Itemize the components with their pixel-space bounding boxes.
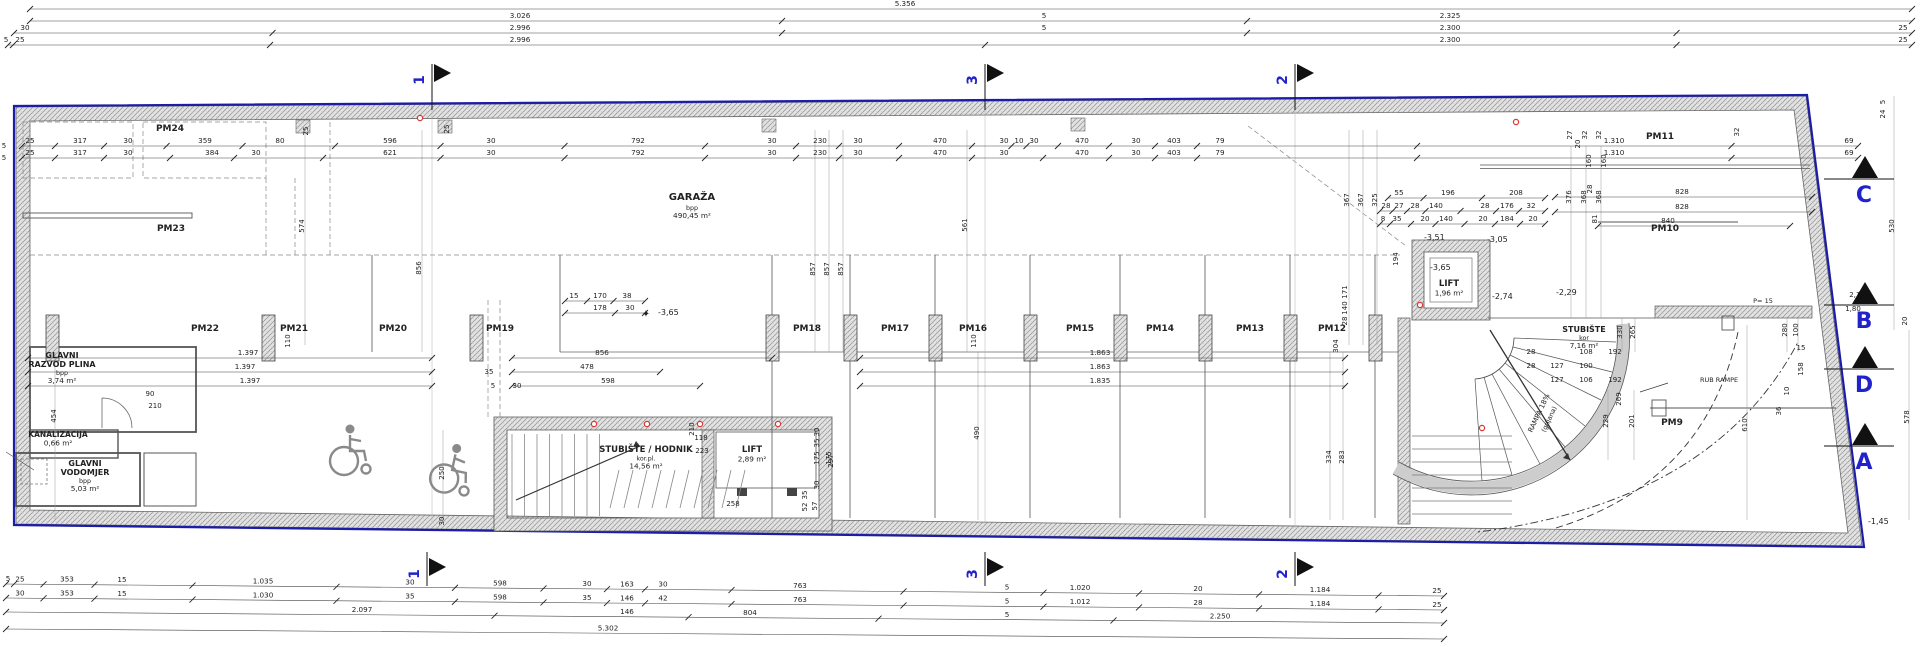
- dim-label: 25: [1432, 600, 1441, 609]
- floor-plan-svg: 5.3563.02652.325302.99652.300255252.9962…: [0, 0, 1920, 647]
- lift-door-jamb: [737, 488, 747, 496]
- dim-label: 28: [1586, 185, 1594, 194]
- dim-label: 30: [582, 579, 592, 588]
- dim-label: 1.012: [1070, 597, 1091, 606]
- dim-label: 15: [1797, 344, 1806, 352]
- dim-label: 140: [1341, 301, 1349, 314]
- column: [1024, 315, 1037, 361]
- dim-label: 10: [1783, 387, 1791, 396]
- room-name: STUBIŠTE / HODNIK: [599, 443, 693, 455]
- dim-label: 598: [493, 578, 507, 587]
- elevation-letter: D: [1855, 373, 1873, 398]
- room-name: STUBIŠTE: [1562, 323, 1605, 334]
- red-marker: [591, 421, 596, 426]
- dim-label: 359: [198, 136, 212, 145]
- dim-label: 384: [205, 148, 219, 157]
- red-marker: [775, 421, 780, 426]
- section-number: 2: [1275, 569, 1291, 579]
- parking-space-label: PM17: [881, 324, 909, 334]
- dim-label: 32: [1581, 131, 1589, 140]
- dim-label: 1.397: [235, 362, 256, 371]
- column: [1199, 315, 1212, 361]
- dim-label: 15: [117, 589, 126, 598]
- parking-space-label: PM18: [793, 324, 821, 334]
- column: [844, 315, 857, 361]
- dim-label: 10: [1014, 136, 1024, 145]
- dim-label: 596: [383, 136, 397, 145]
- dim-line: [6, 629, 1444, 639]
- section-flag-icon: [434, 64, 451, 82]
- elevation-triangle-icon: [1852, 156, 1878, 178]
- dim-label: 110: [284, 334, 292, 347]
- dim-label: 8: [1381, 214, 1386, 223]
- right-core-wall: [1398, 318, 1410, 524]
- level-value: -3,05: [1487, 235, 1508, 244]
- dim-label: 598: [493, 592, 507, 601]
- dim-label: 2.325: [1440, 11, 1461, 20]
- room-name: LIFT: [1439, 279, 1459, 289]
- dim-label: 317: [73, 136, 87, 145]
- dim-label: 3.026: [510, 11, 531, 20]
- dim-label: 55: [1394, 188, 1403, 197]
- annotation: RUB RAMPE: [1700, 376, 1738, 384]
- dim-label: 530: [1888, 219, 1896, 232]
- dim-label: 403: [1167, 136, 1181, 145]
- dim-label: 30: [123, 148, 133, 157]
- dim-label: 25: [443, 125, 451, 134]
- dim-label: 57: [811, 502, 819, 511]
- section-number: 3: [965, 75, 981, 85]
- red-marker: [1513, 119, 1518, 124]
- parking-space-label: PM23: [157, 224, 185, 234]
- dim-label: 28: [1410, 201, 1420, 210]
- dim-label: 856: [415, 261, 423, 275]
- dim-label: 192: [1608, 348, 1621, 356]
- dim-label: 470: [933, 148, 947, 157]
- level-value: -2,74: [1492, 292, 1513, 301]
- dim-label: 30: [625, 303, 635, 312]
- dim-label: 30: [999, 136, 1009, 145]
- section-flag-icon: [987, 64, 1004, 82]
- room-adjacent: [144, 453, 196, 506]
- dim-label: 2.996: [510, 35, 531, 44]
- section-flag-icon: [987, 558, 1004, 576]
- dim-label: 28: [1480, 201, 1490, 210]
- dim-label: 127: [1550, 376, 1563, 384]
- beam: [23, 213, 192, 218]
- dim-label: 230: [813, 136, 827, 145]
- level-value: -3,65: [658, 308, 679, 317]
- dim-label: 28: [1381, 201, 1391, 210]
- section-number: 1: [412, 75, 428, 85]
- dim-label: 28: [1527, 348, 1536, 356]
- dim-label: 610: [1741, 418, 1749, 431]
- wall-pilaster: [762, 119, 776, 132]
- dim-label: 454: [50, 409, 58, 423]
- dim-label: 828: [1675, 202, 1689, 211]
- dim-label: 163: [620, 579, 634, 588]
- dim-label: 35: [1392, 214, 1401, 223]
- dim-label: 146: [620, 593, 634, 602]
- elevation-triangle-icon: [1852, 346, 1878, 368]
- dim-label: 192: [1608, 376, 1621, 384]
- dim-label: 146: [620, 607, 634, 616]
- dim-label: 30: [767, 148, 777, 157]
- dim-label: 35: [801, 491, 809, 500]
- dim-label: 230: [813, 148, 827, 157]
- parking-space-label: PM24: [156, 124, 184, 134]
- level-value: -3,65: [1430, 263, 1451, 272]
- dim-label: 857: [837, 262, 845, 275]
- dim-label: 297: [827, 454, 835, 467]
- dim-label: 5.356: [895, 0, 916, 8]
- ramp-edge-dashdot: [1478, 342, 1798, 532]
- parking-space-label: PM19: [486, 324, 514, 334]
- dim-label: 2.300: [1440, 23, 1461, 32]
- room-name: GLAVNI: [68, 459, 101, 468]
- dim-label: 20: [1528, 214, 1538, 223]
- dim-label: 158: [1797, 362, 1805, 375]
- room-name: GLAVNI: [45, 351, 78, 360]
- dim-label: 35: [813, 439, 821, 448]
- dim-label: 621: [383, 148, 397, 157]
- accessible-parking-icon: [330, 425, 371, 476]
- dim-label: 20: [1901, 317, 1909, 326]
- dim-label: 32: [1733, 128, 1741, 137]
- dim-label: 857: [823, 262, 831, 275]
- dim-label: 25: [302, 127, 310, 136]
- dim-label: 258: [726, 500, 739, 508]
- parking-bay-dashed-lines: [23, 122, 1406, 417]
- dim-label: 1.863: [1090, 362, 1111, 371]
- dim-label: 30: [123, 136, 133, 145]
- parking-space-label: PM21: [280, 324, 308, 334]
- dim-line: [6, 598, 1444, 610]
- bay-separators: [372, 255, 1375, 518]
- dim-label: 25: [1898, 35, 1907, 44]
- room-name: LIFT: [742, 445, 762, 455]
- dim-label: 35: [485, 368, 494, 376]
- parking-space-label: PM11: [1646, 132, 1674, 142]
- dim-label: 470: [1075, 136, 1089, 145]
- dim-label: 5: [1042, 23, 1047, 32]
- dim-label: 25: [1432, 586, 1441, 595]
- dim-label: 32: [1595, 131, 1603, 140]
- dim-label: 30: [999, 148, 1009, 157]
- dim-label: 100: [1579, 362, 1592, 370]
- level-value: -3,51: [1424, 233, 1445, 242]
- annotation: 90: [146, 390, 155, 398]
- parking-space-label: PM10: [1651, 224, 1679, 234]
- dim-label: 36: [1775, 406, 1783, 415]
- elevation-letter: C: [1856, 183, 1872, 208]
- dim-label: 118: [694, 434, 707, 442]
- dim-label: 317: [73, 148, 87, 157]
- dim-label: 2.097: [352, 605, 373, 614]
- dim-label: 403: [1167, 148, 1181, 157]
- dim-label: 175: [813, 451, 821, 464]
- dim-label: 2.250: [1210, 611, 1231, 620]
- dim-label: 28: [1527, 362, 1536, 370]
- dim-label: 804: [743, 608, 757, 617]
- dim-label: 208: [1509, 188, 1523, 197]
- dim-label: 201: [1628, 414, 1636, 427]
- dim-label: 763: [793, 595, 807, 604]
- dim-label: 140: [1429, 201, 1443, 210]
- parking-space-label: PM15: [1066, 324, 1094, 334]
- section-flag-icon: [1297, 64, 1314, 82]
- dim-label: 27: [1394, 201, 1403, 210]
- room-area-value: 5,03 m²: [71, 484, 100, 493]
- dim-label: 30: [767, 136, 777, 145]
- dim-label: 283: [1338, 450, 1346, 463]
- dim-label: 5: [4, 35, 9, 44]
- dim-label: 171: [1341, 285, 1349, 298]
- dim-label: 100: [1792, 323, 1800, 336]
- dim-label: 20: [1574, 140, 1582, 149]
- elevation-triangle-icon: [1852, 423, 1878, 445]
- dim-label: 367: [1357, 193, 1365, 206]
- dim-label: 5: [1005, 610, 1010, 619]
- floor-plan-page: 5.3563.02652.325302.99652.300255252.9962…: [0, 0, 1920, 647]
- column: [766, 315, 779, 361]
- dim-label: 80: [275, 136, 285, 145]
- room-name: RAZVOD PLINA: [28, 360, 96, 369]
- dim-label: 30: [251, 148, 261, 157]
- column: [929, 315, 942, 361]
- dim-label: 376: [1565, 190, 1573, 204]
- dim-label: 856: [595, 348, 609, 357]
- dim-label: 470: [933, 136, 947, 145]
- column: [1369, 315, 1382, 361]
- dim-label: 1.035: [253, 576, 274, 585]
- dim-label: 265: [1629, 325, 1637, 338]
- dim-label: 1.030: [253, 590, 274, 599]
- dim-label: 1.397: [240, 376, 261, 385]
- dim-label: 5: [2, 142, 6, 150]
- dim-label: 35: [405, 592, 414, 601]
- dim-label: 178: [593, 303, 607, 312]
- parking-space-label: PM14: [1146, 324, 1174, 334]
- dim-label: 1.863: [1090, 348, 1111, 357]
- dim-label: 106: [1579, 376, 1593, 384]
- dim-label: 30: [438, 517, 446, 526]
- structure-extra-layer: [46, 96, 1909, 523]
- dim-label: 15: [569, 291, 578, 300]
- dim-label: 1.310: [1604, 136, 1625, 145]
- dim-label: 5.302: [598, 623, 619, 632]
- dim-label: 25: [25, 148, 34, 157]
- room-area-value: 1,96 m²: [1435, 289, 1464, 298]
- parking-space-label: PM13: [1236, 324, 1264, 334]
- dim-label: 5: [491, 382, 495, 390]
- dim-label: 5: [1005, 597, 1010, 606]
- dim-label: 5: [1005, 583, 1010, 592]
- dim-label: 30: [1131, 136, 1141, 145]
- dim-label: 160: [1585, 154, 1593, 167]
- dim-label: 828: [1675, 187, 1689, 196]
- dim-label: 81: [1591, 215, 1599, 224]
- dim-label: 1.397: [238, 348, 259, 357]
- room-area-value: 0,66 m²: [44, 439, 73, 448]
- dim-label: 35: [582, 593, 591, 602]
- room-area-value: 2,89 m²: [738, 455, 767, 464]
- rub-rampe-leader: [1640, 383, 1668, 392]
- parking-space-label: PM16: [959, 324, 987, 334]
- level-value: -1,45: [1868, 517, 1889, 526]
- dim-label: 304: [1332, 339, 1340, 353]
- dim-label: 574: [298, 219, 306, 233]
- dim-label: 30: [813, 481, 821, 490]
- column: [470, 315, 483, 361]
- dim-label: 110: [970, 334, 978, 347]
- wall-pilaster: [1071, 118, 1085, 131]
- parking-space-label: PM20: [379, 324, 407, 334]
- dim-label: 792: [631, 136, 645, 145]
- dim-label: 42: [658, 594, 667, 603]
- dim-label: 32: [1526, 201, 1535, 210]
- dim-label: 578: [1903, 410, 1911, 423]
- column: [262, 315, 275, 361]
- dim-label: 561: [961, 218, 969, 231]
- section-flag-icon: [1297, 558, 1314, 576]
- dim-label: 1.184: [1310, 599, 1331, 608]
- dim-label: 52: [801, 503, 809, 512]
- room-name: GARAŽA: [669, 190, 716, 203]
- dim-label: 1.835: [1090, 376, 1111, 385]
- column: [1284, 315, 1297, 361]
- column: [1114, 315, 1127, 361]
- dim-label: 334: [1325, 450, 1333, 464]
- dim-label: 25: [15, 574, 24, 583]
- dim-label: 28: [1193, 598, 1203, 607]
- dim-label: 30: [853, 148, 863, 157]
- dim-label: 196: [1441, 188, 1455, 197]
- red-marker: [1417, 302, 1422, 307]
- dim-label: 368: [1595, 190, 1603, 203]
- door-swing: [102, 398, 132, 428]
- dim-label: 2.300: [1440, 35, 1461, 44]
- dim-label: 20: [1420, 214, 1430, 223]
- dim-label: 79: [1215, 148, 1225, 157]
- room-area-value: 7,16 m²: [1570, 341, 1599, 350]
- dim-label: 2.996: [510, 23, 531, 32]
- dim-label: 127: [1550, 362, 1563, 370]
- dim-label: 30: [658, 580, 668, 589]
- red-marker: [697, 421, 702, 426]
- room-name: VODOMJER: [61, 468, 110, 477]
- dim-label: 1.020: [1070, 583, 1091, 592]
- dim-label: 170: [593, 291, 607, 300]
- level-value: -2,29: [1556, 288, 1577, 297]
- dim-label: 598: [601, 376, 615, 385]
- annotation: P= 15: [1753, 297, 1773, 305]
- dim-label: 30: [813, 428, 821, 437]
- parking-space-label: PM9: [1661, 418, 1683, 428]
- lift-door-jamb: [787, 488, 797, 496]
- dim-label: 792: [631, 148, 645, 157]
- dim-label: 30: [1029, 136, 1039, 145]
- dim-label: 1.184: [1310, 585, 1331, 594]
- parking-space-label: PM22: [191, 324, 219, 334]
- red-marker: [1479, 425, 1484, 430]
- room-area-value: 490,45 m²: [673, 211, 711, 220]
- dim-label: 5: [1042, 11, 1047, 20]
- dim-label: 27: [1566, 131, 1574, 140]
- dim-label: 38: [622, 291, 632, 300]
- dim-label: 30: [486, 136, 496, 145]
- dim-label: 478: [580, 362, 594, 371]
- accessible-parking-icon: [428, 440, 478, 498]
- dim-label: 330: [1616, 325, 1624, 338]
- dim-label: 30: [853, 136, 863, 145]
- elevation-letter: B: [1856, 309, 1873, 334]
- dim-label: 470: [1075, 148, 1089, 157]
- annotation: 210: [148, 402, 161, 410]
- dim-label: 69: [1844, 148, 1854, 157]
- dim-label: 229: [1602, 414, 1610, 427]
- section-number: 3: [965, 569, 981, 579]
- section-flag-icon: [429, 558, 446, 576]
- dim-label: 30: [486, 148, 496, 157]
- dim-label: 194: [1392, 252, 1400, 266]
- section-number: 1: [407, 569, 423, 579]
- dim-label: 20: [1193, 584, 1203, 593]
- dim-label: 353: [60, 575, 74, 584]
- dim-label: 30: [20, 23, 30, 32]
- dim-label: 25: [25, 136, 34, 145]
- parking-space-label: PM12: [1318, 324, 1346, 334]
- dim-label: 353: [60, 589, 74, 598]
- dim-label: 69: [1844, 136, 1854, 145]
- dim-label: 176: [1500, 201, 1514, 210]
- red-marker: [644, 421, 649, 426]
- dim-label: 490: [973, 426, 981, 439]
- dim-label: 5: [6, 574, 11, 583]
- dim-label: 280: [1781, 323, 1789, 336]
- dim-label: 763: [793, 581, 807, 590]
- dim-label: 30: [1131, 148, 1141, 157]
- dim-line: [6, 584, 1444, 596]
- dim-label: 30: [15, 588, 25, 597]
- dim-label: 79: [1215, 136, 1225, 145]
- dim-label: 5: [1879, 100, 1887, 104]
- red-marker: [417, 115, 422, 120]
- dim-label: 857: [809, 262, 817, 275]
- dim-label: 367: [1343, 193, 1351, 206]
- elevation-letter: A: [1855, 450, 1872, 475]
- dim-label: 15: [117, 575, 126, 584]
- level-star-icon: ✦: [642, 309, 650, 320]
- room-area-value: 3,74 m²: [48, 376, 77, 385]
- dim-label: 223: [695, 447, 708, 455]
- dim-label: 25: [1898, 23, 1907, 32]
- dim-label: 250: [438, 466, 446, 479]
- core-partition-wall: [702, 430, 714, 518]
- dim-label: 30: [513, 382, 522, 390]
- dim-label: 160: [1600, 154, 1608, 167]
- room-area-value: 14,56 m²: [629, 462, 662, 471]
- dim-label: 140: [1439, 214, 1453, 223]
- dim-label: 269: [1615, 392, 1623, 405]
- dim-label: 5: [2, 154, 6, 162]
- dim-label: 325: [1371, 193, 1379, 206]
- section-number: 2: [1275, 75, 1291, 85]
- dim-label: 25: [15, 35, 24, 44]
- dim-label: 184: [1500, 214, 1514, 223]
- dim-label: 20: [1478, 214, 1488, 223]
- dim-label: 24: [1879, 109, 1887, 118]
